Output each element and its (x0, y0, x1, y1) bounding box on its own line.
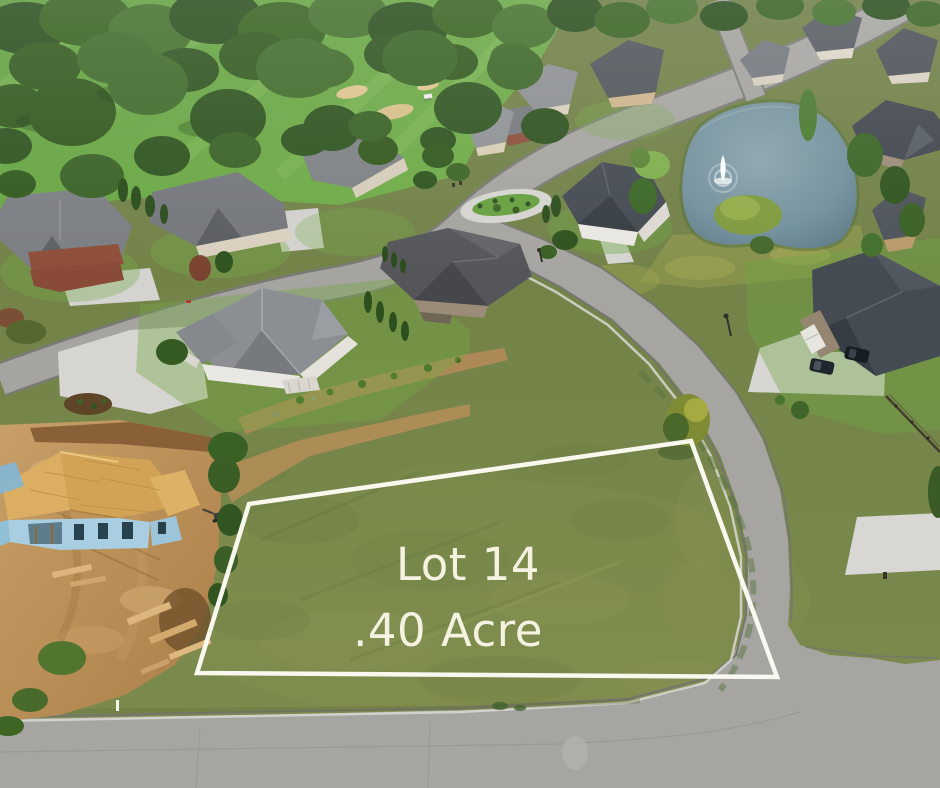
aerial-photo-canvas: Lot 14 .40 Acre (0, 0, 940, 788)
acreage-label: .40 Acre (353, 604, 543, 657)
haze (0, 0, 940, 788)
aerial-photo: Lot 14 .40 Acre (0, 0, 940, 788)
lot-label: Lot 14 (396, 538, 540, 591)
